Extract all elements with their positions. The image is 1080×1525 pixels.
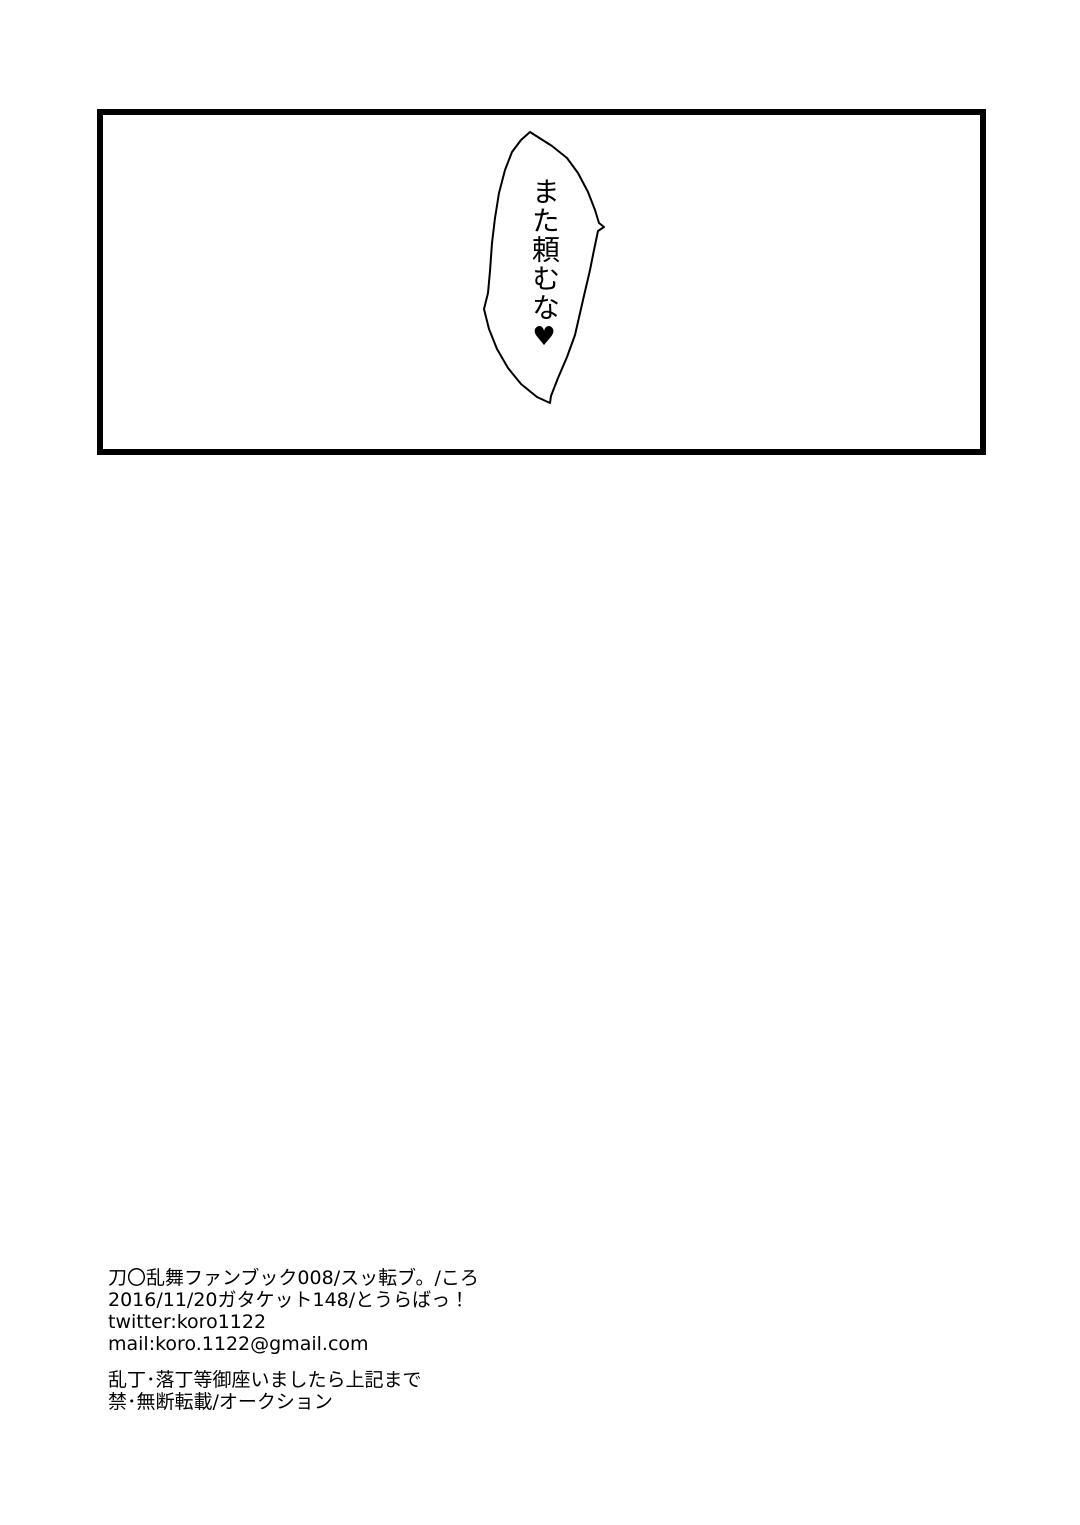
colophon-defect-notice-line: 乱丁･落丁等御座いましたら上記まで <box>108 1369 479 1391</box>
speech-bubble-text: また頼むな♥ <box>526 177 562 352</box>
colophon-prohibition-line: 禁･無断転載/オークション <box>108 1391 479 1413</box>
page-canvas: また頼むな♥ 刀〇乱舞ファンブック008/スッ転ブ。/ころ 2016/11/20… <box>0 0 1080 1525</box>
heart-icon: ♥ <box>529 322 559 352</box>
colophon-mail-line: mail:koro.1122@gmail.com <box>108 1333 479 1355</box>
colophon-event-line: 2016/11/20ガタケット148/とうらばっ！ <box>108 1289 479 1311</box>
colophon: 刀〇乱舞ファンブック008/スッ転ブ。/ころ 2016/11/20ガタケット14… <box>108 1267 479 1413</box>
colophon-twitter-line: twitter:koro1122 <box>108 1311 479 1333</box>
dialogue-text: また頼むな <box>528 177 561 322</box>
colophon-title-line: 刀〇乱舞ファンブック008/スッ転ブ。/ころ <box>108 1267 479 1289</box>
